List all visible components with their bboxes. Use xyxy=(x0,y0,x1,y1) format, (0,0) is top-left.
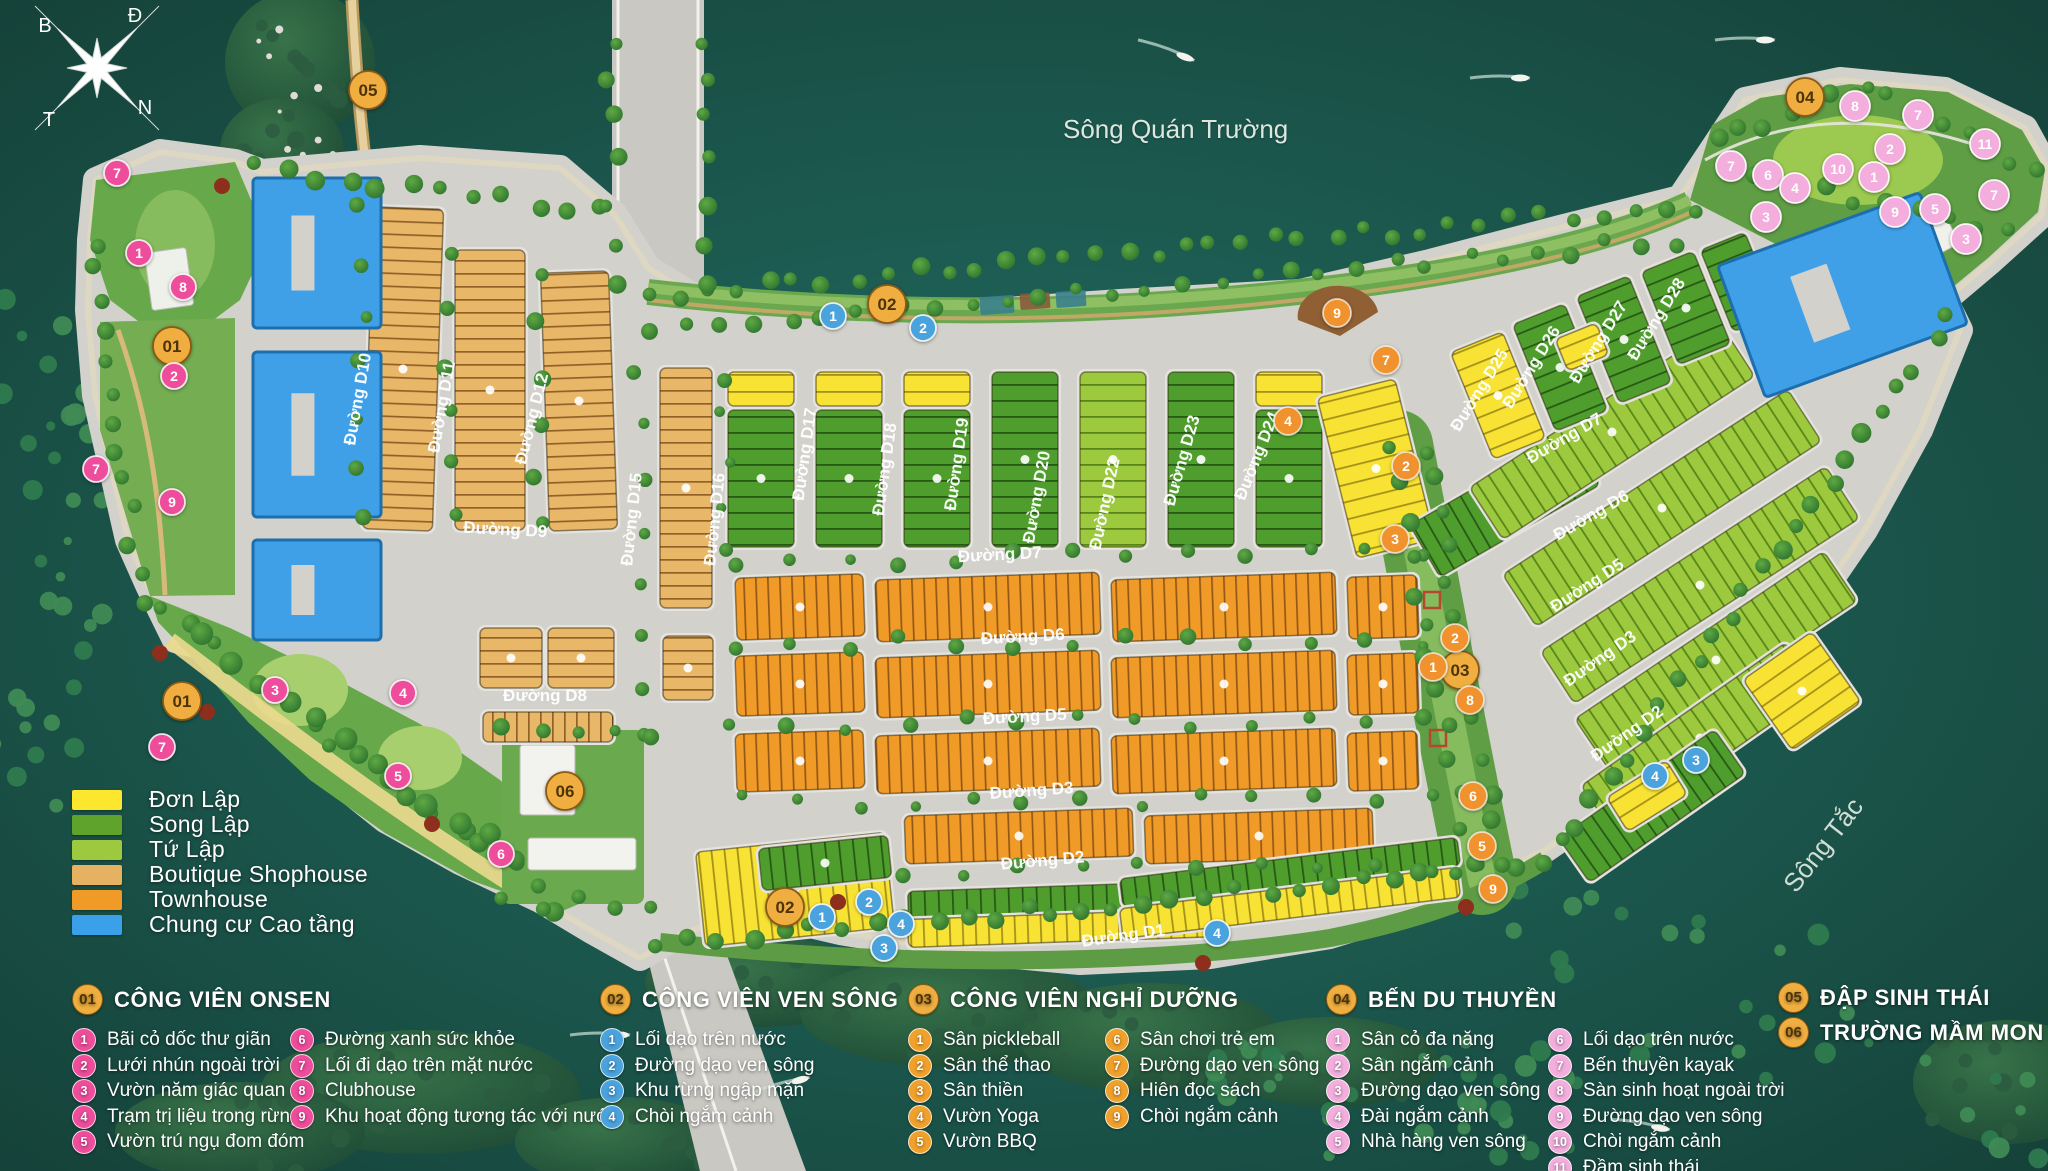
lily-pad xyxy=(40,592,58,610)
lot-group-dot xyxy=(577,654,586,663)
poi-section-title: BẾN DU THUYỀN xyxy=(1368,987,1557,1013)
tree xyxy=(1233,235,1248,250)
tree xyxy=(1774,540,1793,559)
tree xyxy=(696,38,708,50)
mangrove-tree xyxy=(287,131,305,149)
tree xyxy=(280,160,299,179)
tree xyxy=(97,322,115,340)
poi-item-number-badge: 5 xyxy=(72,1130,96,1154)
poi-item: 2Đường dạo ven sông xyxy=(600,1054,814,1078)
tree xyxy=(1131,857,1143,869)
tree xyxy=(344,173,363,192)
marker-blue-4-label: 4 xyxy=(897,916,905,932)
poi-item-number-badge: 4 xyxy=(72,1105,96,1129)
tree xyxy=(1449,867,1462,880)
lot-group-dot xyxy=(1608,428,1617,437)
poi-item: 8Sàn sinh hoạt ngoài trời xyxy=(1548,1079,1785,1103)
tree xyxy=(843,642,858,657)
housing-type-legend: Đơn LậpSong LậpTứ LậpBoutique ShophouseT… xyxy=(72,787,368,937)
lily-pad xyxy=(20,435,37,452)
tree xyxy=(1604,767,1623,786)
marker-blue-1-label: 1 xyxy=(829,308,837,324)
tree xyxy=(1312,268,1324,280)
don-lap-lots xyxy=(1256,372,1322,406)
poi-item: 1Lối dạo trên nước xyxy=(600,1028,786,1052)
marker-gold-05-label: 05 xyxy=(359,81,378,100)
poi-item: 5Vườn BBQ xyxy=(908,1130,1037,1154)
blossom-dot xyxy=(284,146,291,153)
blossom-dot xyxy=(278,110,282,114)
marker-pink-3-label: 3 xyxy=(271,682,279,698)
tree xyxy=(1620,753,1634,767)
boat-hull xyxy=(1756,37,1774,44)
lot-group-dot xyxy=(684,664,693,673)
marker-marina-1-label: 1 xyxy=(1870,169,1878,185)
tree xyxy=(1227,880,1241,894)
lily-pad xyxy=(1263,1080,1276,1093)
tree xyxy=(1312,862,1323,873)
lily-pad xyxy=(66,493,81,508)
tree xyxy=(1218,278,1229,289)
tree xyxy=(1729,119,1746,136)
tree xyxy=(1134,895,1152,913)
tree xyxy=(1305,637,1318,650)
tree xyxy=(737,790,748,801)
tree xyxy=(699,197,718,216)
tree xyxy=(1180,237,1194,251)
tree xyxy=(987,912,1004,929)
tree xyxy=(135,567,150,582)
poi-item-label: Sân cỏ đa năng xyxy=(1361,1029,1494,1051)
lily-pad xyxy=(1615,907,1629,921)
apartment-tower-court xyxy=(291,216,314,291)
tree xyxy=(783,554,796,567)
tree xyxy=(911,801,921,811)
poi-item-label: Khu hoạt động tương tác với nước xyxy=(325,1106,618,1128)
poi-item-label: Chòi ngắm cảnh xyxy=(635,1106,773,1128)
tree xyxy=(912,257,930,275)
mangrove-tree xyxy=(283,109,296,122)
poi-item-number-badge: 1 xyxy=(908,1028,932,1052)
lily-pad xyxy=(64,738,84,758)
lily-pad xyxy=(1563,897,1582,916)
tree xyxy=(305,171,325,191)
tree xyxy=(730,285,743,298)
tree xyxy=(154,601,167,614)
poi-item-number-badge: 4 xyxy=(1326,1105,1350,1129)
tree xyxy=(1188,860,1204,876)
marker-blue-4-label: 4 xyxy=(1213,925,1221,941)
tree xyxy=(1072,903,1089,920)
tree xyxy=(638,418,649,429)
poi-item: 1Sân pickleball xyxy=(908,1028,1060,1052)
tree xyxy=(641,323,658,340)
lily-pad xyxy=(16,698,35,717)
lot-group-dot xyxy=(796,680,805,689)
mangrove-tree xyxy=(2002,1123,2018,1139)
poi-item-number-badge: 7 xyxy=(1105,1054,1129,1078)
tree xyxy=(849,304,862,317)
poi-section-title: ĐẬP SINH THÁI xyxy=(1820,985,1990,1011)
tree xyxy=(723,718,735,730)
lily-pad xyxy=(1960,1107,1975,1122)
tree xyxy=(1030,289,1047,306)
marker-orange-9-label: 9 xyxy=(1333,305,1341,321)
tree xyxy=(697,108,710,121)
lily-pad xyxy=(92,604,113,625)
tree xyxy=(306,707,326,727)
lily-pad xyxy=(1515,1055,1537,1077)
tree xyxy=(729,642,743,656)
tree xyxy=(1733,583,1747,597)
red-tree xyxy=(214,178,230,194)
tree xyxy=(115,470,129,484)
tree xyxy=(98,354,112,368)
tree xyxy=(1121,243,1139,261)
poi-item-label: Chòi ngắm cảnh xyxy=(1583,1131,1721,1153)
tree xyxy=(1269,227,1283,241)
tree xyxy=(1265,887,1281,903)
poi-item-label: Chòi ngắm cảnh xyxy=(1140,1106,1278,1128)
poi-item-label: Đài ngắm cảnh xyxy=(1361,1106,1489,1128)
tree xyxy=(1322,877,1340,895)
red-tree xyxy=(830,894,846,910)
tree xyxy=(1876,405,1890,419)
tree xyxy=(492,718,509,735)
mangrove-tree xyxy=(256,20,268,32)
poi-item-number-badge: 2 xyxy=(72,1054,96,1078)
tree xyxy=(525,469,542,486)
tree xyxy=(745,316,762,333)
legend-swatch xyxy=(72,790,122,810)
lot-group-dot xyxy=(1220,680,1229,689)
tree xyxy=(1438,576,1451,589)
lily-pad xyxy=(56,572,66,582)
poi-item: 11Đầm sinh thái xyxy=(1548,1156,1699,1171)
tree xyxy=(895,868,910,883)
lot-group-dot xyxy=(486,386,495,395)
tree xyxy=(105,416,121,432)
tree xyxy=(1349,261,1365,277)
marker-blue-2-label: 2 xyxy=(865,894,873,910)
tree xyxy=(1174,276,1190,292)
tree xyxy=(639,528,650,539)
poi-item-label: Sân ngắm cảnh xyxy=(1361,1055,1494,1077)
poi-item: 9Đường dạo ven sông xyxy=(1548,1105,1762,1129)
tree xyxy=(1846,197,1860,211)
tree xyxy=(1368,858,1382,872)
tree xyxy=(1427,789,1439,801)
lily-pad xyxy=(53,316,72,335)
tree xyxy=(1181,544,1195,558)
marker-blue-3-label: 3 xyxy=(880,940,888,956)
poi-section-number-badge: 06 xyxy=(1778,1017,1809,1048)
poi-item: 6Sân chơi trẻ em xyxy=(1105,1028,1275,1052)
tree xyxy=(494,892,508,906)
marker-pink-7-label: 7 xyxy=(113,165,121,181)
legend-row: Boutique Shophouse xyxy=(72,862,368,887)
tree xyxy=(610,148,628,166)
tree xyxy=(812,276,829,293)
tree xyxy=(605,105,622,122)
tree xyxy=(1889,379,1904,394)
tree xyxy=(444,454,458,468)
tree xyxy=(526,312,544,330)
legend-row: Townhouse xyxy=(72,887,368,912)
tree xyxy=(1238,638,1251,651)
poi-item: 1Sân cỏ đa năng xyxy=(1326,1028,1494,1052)
poi-item-label: Đường dạo ven sông xyxy=(1140,1055,1319,1077)
lot-group-dot xyxy=(507,654,516,663)
lot-group-dot xyxy=(1658,504,1667,513)
marker-gold-06-label: 06 xyxy=(556,782,575,801)
river-label-top: Sông Quán Trường xyxy=(1063,114,1288,144)
tree xyxy=(869,913,887,931)
marker-marina-8-label: 8 xyxy=(1851,98,1859,114)
tree xyxy=(433,181,447,195)
legend-swatch xyxy=(72,865,122,885)
mangrove-tree xyxy=(734,965,749,980)
marker-marina-2-label: 2 xyxy=(1886,141,1894,157)
marker-pink-5-label: 5 xyxy=(394,768,402,784)
marker-pink-6-label: 6 xyxy=(497,846,505,862)
marker-gold-03-label: 03 xyxy=(1451,661,1470,680)
tree xyxy=(1195,788,1207,800)
tree xyxy=(1360,715,1373,728)
tree xyxy=(573,726,585,738)
poi-item-number-badge: 2 xyxy=(908,1054,932,1078)
legend-label: Đơn Lập xyxy=(149,786,240,813)
mangrove-tree xyxy=(1059,1051,1069,1061)
poi-section-04: 04BẾN DU THUYỀN1Sân cỏ đa năng2Sân ngắm … xyxy=(1326,984,1557,1015)
poi-item: 4Vườn Yoga xyxy=(908,1105,1039,1129)
mangrove-tree xyxy=(971,1013,986,1028)
tree xyxy=(783,638,796,651)
tree xyxy=(1072,790,1087,805)
lily-pad xyxy=(7,767,27,787)
poi-item-number-badge: 8 xyxy=(290,1079,314,1103)
tree xyxy=(1087,245,1103,261)
poi-section-number-badge: 01 xyxy=(72,984,103,1015)
marker-pink-8-label: 8 xyxy=(179,279,187,295)
poi-item-number-badge: 10 xyxy=(1548,1130,1572,1154)
poi-item-number-badge: 1 xyxy=(1326,1028,1350,1052)
poi-item: 4Trạm trị liệu trong rừng xyxy=(72,1105,301,1129)
tree xyxy=(598,71,615,88)
poi-item-number-badge: 9 xyxy=(1105,1105,1129,1129)
poi-item-label: Đầm sinh thái xyxy=(1583,1157,1699,1171)
lily-pad xyxy=(19,721,31,733)
lily-pad xyxy=(27,746,44,763)
marker-orange-3-label: 3 xyxy=(1391,531,1399,547)
lily-pad xyxy=(1920,1055,1932,1067)
legend-label: Townhouse xyxy=(149,886,268,913)
poi-item-number-badge: 6 xyxy=(290,1028,314,1052)
tree xyxy=(247,156,261,170)
boat-hull xyxy=(1511,75,1529,82)
mangrove-tree xyxy=(1958,1054,1972,1068)
tree xyxy=(1237,548,1252,563)
lot-group-dot xyxy=(796,757,805,766)
apartment-tower-court xyxy=(291,393,314,476)
tree xyxy=(1835,450,1854,469)
tree xyxy=(1467,248,1478,259)
tree xyxy=(1022,899,1038,915)
apartment-tower xyxy=(253,540,381,640)
tree xyxy=(1497,255,1509,267)
tree xyxy=(1420,618,1433,631)
poi-item-label: Vườn năm giác quan xyxy=(107,1080,285,1102)
tree xyxy=(105,444,122,461)
marker-gold-02-label: 02 xyxy=(776,898,795,917)
legend-swatch xyxy=(72,840,122,860)
lot-group-dot xyxy=(682,484,691,493)
marker-gold-01-label: 01 xyxy=(163,337,182,356)
marker-gold-02-label: 02 xyxy=(878,295,897,314)
tree xyxy=(1441,537,1457,553)
poi-item: 1Bãi cỏ dốc thư giãn xyxy=(72,1028,271,1052)
poi-item-number-badge: 3 xyxy=(600,1079,624,1103)
tree xyxy=(931,912,949,930)
legend-label: Chung cư Cao tầng xyxy=(149,911,355,938)
tree xyxy=(1482,810,1501,829)
poi-item-number-badge: 3 xyxy=(72,1079,96,1103)
tree xyxy=(1407,550,1421,564)
tree xyxy=(1851,423,1871,443)
tree xyxy=(1755,558,1770,573)
lot-group-dot xyxy=(796,603,805,612)
compass-label-top_left: B xyxy=(38,15,51,37)
lot-group-dot xyxy=(1220,603,1229,612)
tree xyxy=(1382,441,1395,454)
red-tree xyxy=(1458,899,1474,915)
tree xyxy=(107,388,120,401)
poi-item-number-badge: 9 xyxy=(1548,1105,1572,1129)
poi-item-label: Đường xanh sức khỏe xyxy=(325,1029,515,1051)
poi-section-header: 02CÔNG VIÊN VEN SÔNG xyxy=(600,984,899,1015)
tree xyxy=(1753,119,1771,137)
poi-item-label: Sân pickleball xyxy=(943,1029,1060,1051)
poi-section-01: 01CÔNG VIÊN ONSEN1Bãi cỏ dốc thư giãn2Lư… xyxy=(72,984,331,1015)
tree xyxy=(1255,857,1268,870)
lily-pad xyxy=(1739,1000,1753,1014)
tree xyxy=(118,537,135,554)
marker-marina-7-label: 7 xyxy=(1990,187,1998,203)
legend-row: Đơn Lập xyxy=(72,787,368,812)
mangrove-tree xyxy=(295,57,310,72)
tree xyxy=(1137,801,1148,812)
poi-section-06: 06TRƯỜNG MẦM MON xyxy=(1778,1017,2044,1048)
tree xyxy=(1425,467,1443,485)
legend-row: Chung cư Cao tầng xyxy=(72,912,368,937)
poi-item: 3Đường dạo ven sông xyxy=(1326,1079,1540,1103)
tree xyxy=(1253,268,1264,279)
tree xyxy=(792,794,803,805)
legend-label: Tứ Lập xyxy=(149,836,225,863)
lily-pad xyxy=(35,555,48,568)
tree xyxy=(642,729,659,746)
don-lap-lots xyxy=(728,372,794,406)
tree xyxy=(778,717,795,734)
tree xyxy=(607,900,622,915)
tree xyxy=(610,38,622,50)
tree xyxy=(1028,247,1046,265)
tree xyxy=(1129,713,1141,725)
tree xyxy=(533,200,550,217)
marker-marina-6-label: 6 xyxy=(1764,167,1772,183)
marker-pink-9-label: 9 xyxy=(168,494,176,510)
lily-pad xyxy=(49,799,63,813)
legend-label: Boutique Shophouse xyxy=(149,861,368,888)
red-tree xyxy=(1195,955,1211,971)
road-label-d8: Đường D8 xyxy=(503,686,587,705)
tree xyxy=(1453,822,1468,837)
tree xyxy=(1425,865,1438,878)
poi-item-label: Clubhouse xyxy=(325,1080,416,1102)
tree xyxy=(673,291,689,307)
tree xyxy=(2001,223,2015,237)
tree xyxy=(997,251,1015,269)
tree xyxy=(1935,117,1951,133)
marker-pink-4-label: 4 xyxy=(399,685,407,701)
marker-pink-7-label: 7 xyxy=(92,461,100,477)
tree xyxy=(361,311,373,323)
poi-item-label: Đường dạo ven sông xyxy=(1361,1080,1540,1102)
lot-group-dot xyxy=(1285,474,1294,483)
poi-section-number-badge: 04 xyxy=(1326,984,1357,1015)
mangrove-tree xyxy=(484,1088,498,1102)
lily-pad xyxy=(1989,1137,2010,1158)
poi-item: 10Chòi ngắm cảnh xyxy=(1548,1130,1721,1154)
tree xyxy=(714,406,725,417)
legend-swatch xyxy=(72,815,122,835)
tree xyxy=(1056,250,1069,263)
lily-pad xyxy=(46,421,55,430)
lot-group-dot xyxy=(845,474,854,483)
poi-item-number-badge: 6 xyxy=(1548,1028,1572,1052)
lot-group-dot xyxy=(1798,687,1807,696)
tree xyxy=(335,727,358,750)
tree xyxy=(1802,496,1820,514)
marker-orange-6-label: 6 xyxy=(1469,788,1477,804)
poi-item-label: Trạm trị liệu trong rừng xyxy=(107,1106,301,1128)
tree xyxy=(1246,720,1258,732)
tree xyxy=(728,558,743,573)
tree xyxy=(1426,680,1444,698)
tree xyxy=(967,792,980,805)
tree xyxy=(927,300,944,317)
mangrove-tree xyxy=(322,82,340,100)
marker-blue-3-label: 3 xyxy=(1692,752,1700,768)
lot-group-dot xyxy=(933,474,942,483)
marker-marina-10-label: 10 xyxy=(1830,161,1846,177)
tree xyxy=(128,499,142,513)
lot-group-dot xyxy=(575,397,584,406)
poi-section-header: 04BẾN DU THUYỀN xyxy=(1326,984,1557,1015)
lily-pad xyxy=(48,451,61,464)
tree xyxy=(536,268,549,281)
poi-item: 5Nhà hàng ven sông xyxy=(1326,1130,1526,1154)
tree xyxy=(855,802,868,815)
poi-item: 7Đường dạo ven sông xyxy=(1105,1054,1319,1078)
poi-item: 6Lối dạo trên nước xyxy=(1548,1028,1734,1052)
tree xyxy=(882,267,895,280)
tree xyxy=(943,266,956,279)
compass-label-top_right: Đ xyxy=(128,5,142,27)
marker-marina-5-label: 5 xyxy=(1931,201,1939,217)
poi-section-02: 02CÔNG VIÊN VEN SÔNG1Lối dạo trên nước2Đ… xyxy=(600,984,899,1015)
tree xyxy=(368,754,388,774)
